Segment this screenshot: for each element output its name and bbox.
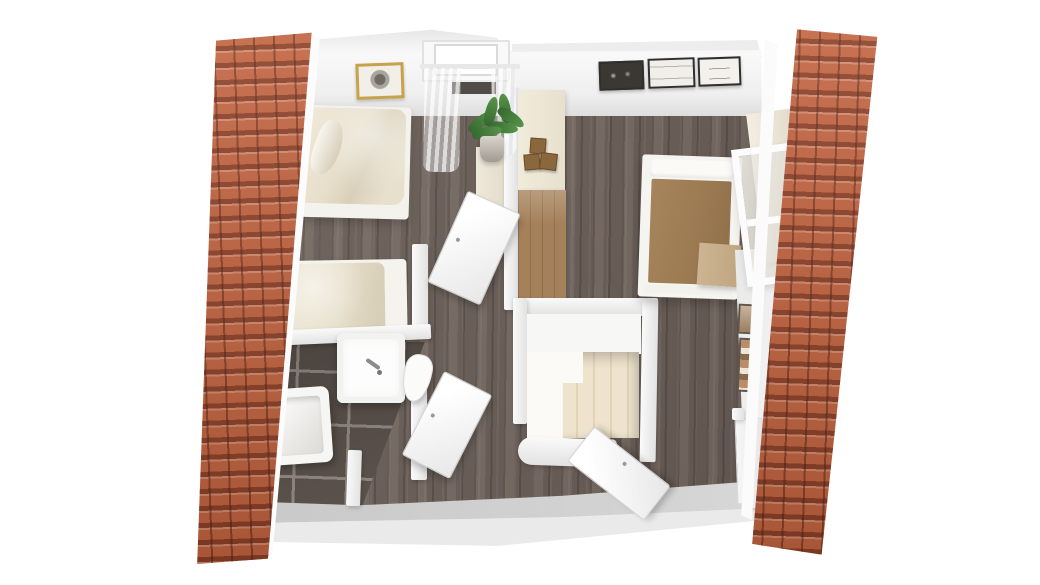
bathroom-wall-stub (346, 450, 362, 506)
stairwell-wall-left (513, 298, 527, 424)
washbasin-vanity (337, 333, 405, 403)
wall-frame-sketch (647, 57, 695, 89)
door-handle (622, 461, 628, 467)
desk (697, 243, 742, 288)
door-handle (455, 237, 460, 242)
plant-pot (480, 136, 504, 162)
wall-frame-dark (599, 60, 645, 91)
wall-frame-text (698, 56, 742, 86)
door-handle (430, 413, 435, 418)
storage-box (539, 152, 558, 171)
framed-picture (355, 62, 404, 100)
curtain-left (423, 68, 461, 173)
door-post (732, 408, 744, 420)
wood-dresser (518, 190, 566, 304)
duvet (284, 262, 385, 333)
drain (377, 370, 382, 375)
floor-plan-scene (0, 0, 1040, 585)
pillow (650, 159, 735, 180)
stairwell-wall-right (640, 300, 659, 462)
stair-landing (527, 314, 641, 354)
